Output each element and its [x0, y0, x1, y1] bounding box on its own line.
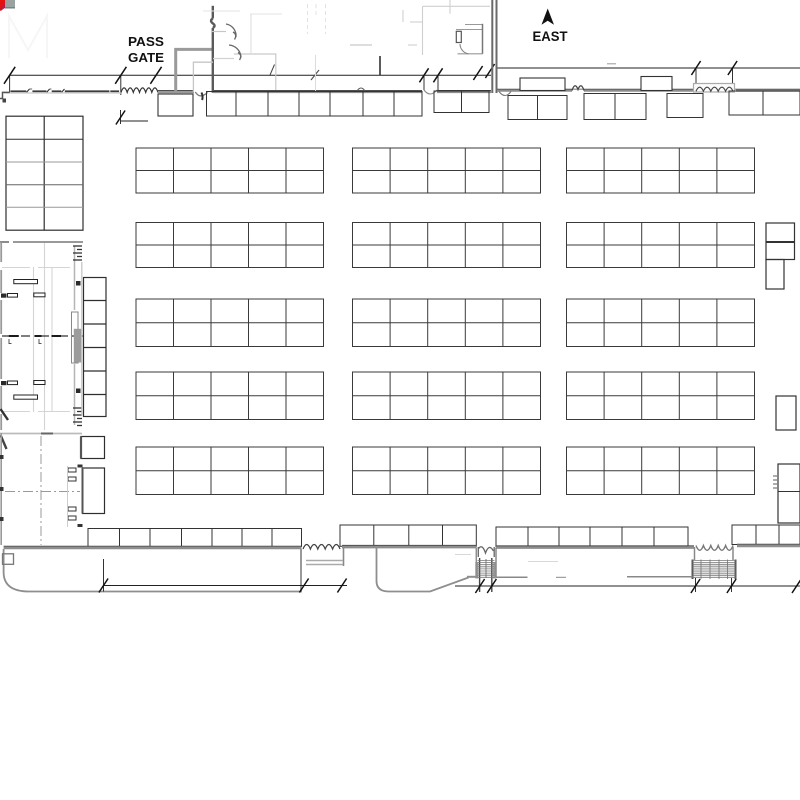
- svg-text:EAST: EAST: [533, 28, 568, 44]
- svg-text:PASS: PASS: [128, 35, 164, 49]
- svg-text:GATE: GATE: [128, 51, 164, 65]
